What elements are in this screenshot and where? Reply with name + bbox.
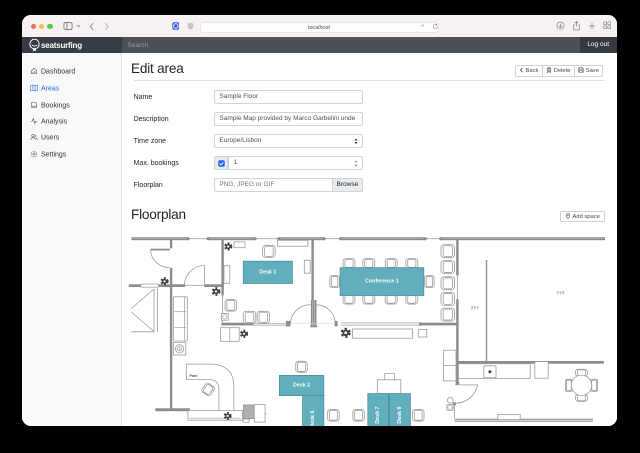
svg-text:???: ???: [556, 291, 564, 296]
svg-text:ᵛᵃ: ᵛᵃ: [421, 24, 424, 29]
svg-text:???: ???: [471, 306, 479, 311]
svg-text:Desk 8: Desk 8: [397, 407, 403, 424]
svg-text:Desk 2: Desk 2: [293, 383, 310, 389]
svg-text:Pam: Pam: [190, 374, 199, 378]
svg-text:Desk 6: Desk 6: [310, 411, 316, 426]
svg-text:Conference 1: Conference 1: [365, 279, 399, 285]
svg-text:Desk 7: Desk 7: [375, 407, 381, 424]
svg-text:Desk 1: Desk 1: [259, 269, 276, 275]
